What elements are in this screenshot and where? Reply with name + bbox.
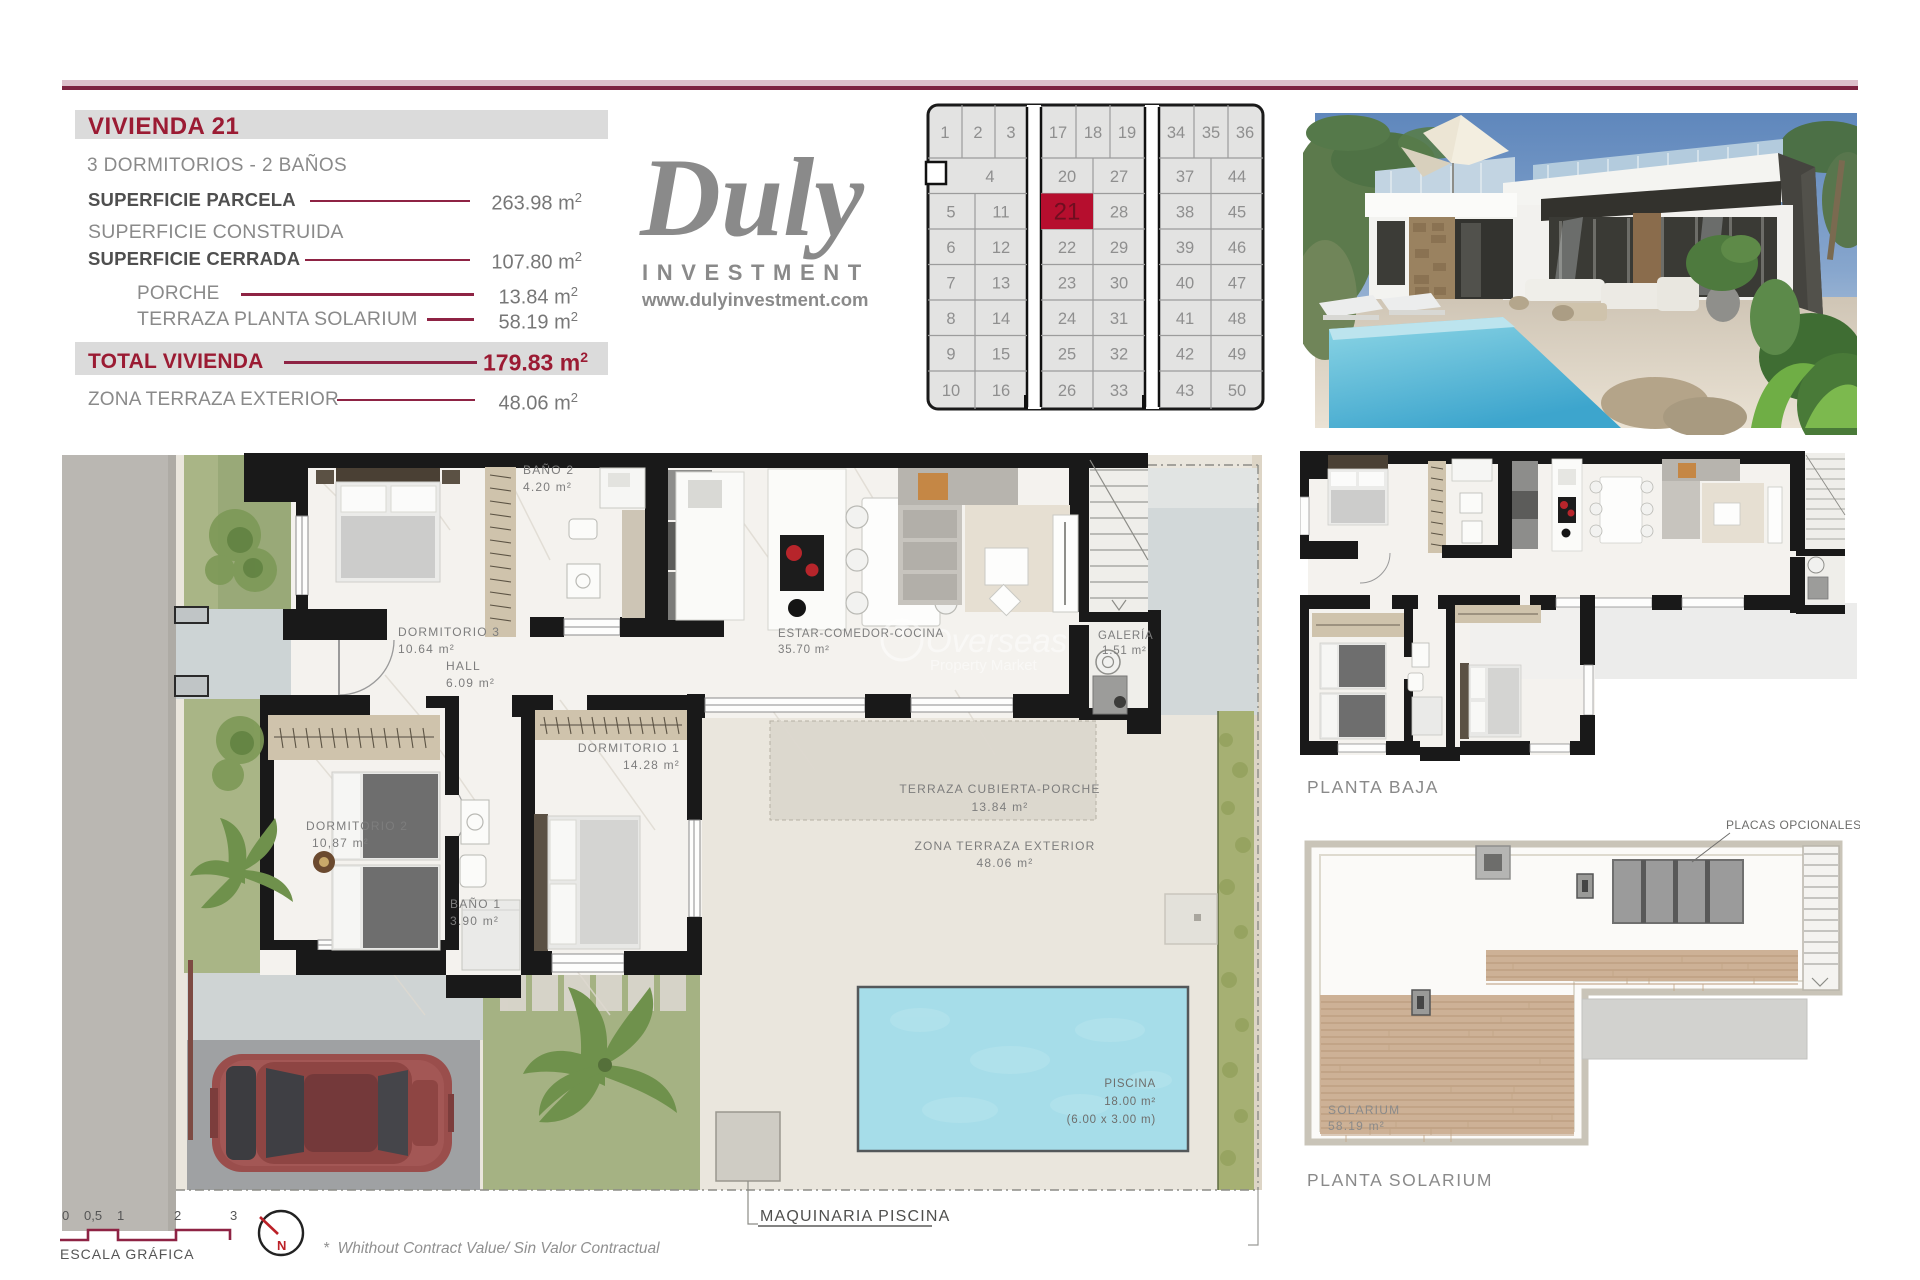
svg-text:25: 25 xyxy=(1058,345,1076,363)
svg-text:www.dulyinvestment.com: www.dulyinvestment.com xyxy=(641,289,869,310)
svg-text:BAÑO 1: BAÑO 1 xyxy=(450,897,501,911)
svg-text:HALL: HALL xyxy=(446,659,481,673)
svg-text:40: 40 xyxy=(1176,274,1194,292)
svg-text:35: 35 xyxy=(1202,124,1220,142)
svg-text:GALERÍA: GALERÍA xyxy=(1098,629,1153,642)
svg-text:34: 34 xyxy=(1167,124,1185,142)
svg-text:18: 18 xyxy=(1084,124,1102,142)
svg-text:14: 14 xyxy=(992,310,1010,328)
svg-text:28: 28 xyxy=(1110,203,1128,221)
svg-text:3: 3 xyxy=(1006,124,1015,142)
svg-text:4: 4 xyxy=(985,168,994,186)
svg-text:1.51 m²: 1.51 m² xyxy=(1102,645,1147,657)
svg-text:36: 36 xyxy=(1236,124,1254,142)
svg-text:58.19 m²: 58.19 m² xyxy=(1328,1119,1385,1133)
svg-text:PLANTA BAJA: PLANTA BAJA xyxy=(1307,777,1439,797)
svg-text:30: 30 xyxy=(1110,274,1128,292)
svg-text:45: 45 xyxy=(1228,203,1246,221)
svg-text:14.28 m²: 14.28 m² xyxy=(623,758,680,772)
svg-text:39: 39 xyxy=(1176,239,1194,257)
svg-text:16: 16 xyxy=(992,382,1010,400)
svg-text:42: 42 xyxy=(1176,345,1194,363)
svg-text:15: 15 xyxy=(992,345,1010,363)
svg-text:Duly: Duly xyxy=(639,136,865,260)
svg-text:31: 31 xyxy=(1110,310,1128,328)
svg-text:DORMITORIO 2: DORMITORIO 2 xyxy=(306,819,408,833)
svg-text:27: 27 xyxy=(1110,168,1128,186)
svg-text:47: 47 xyxy=(1228,274,1246,292)
svg-text:38: 38 xyxy=(1176,203,1194,221)
svg-text:18.00 m²: 18.00 m² xyxy=(1104,1096,1156,1108)
svg-text:26: 26 xyxy=(1058,382,1076,400)
svg-text:Property Market: Property Market xyxy=(930,657,1038,674)
svg-text:44: 44 xyxy=(1228,168,1246,186)
svg-text:23: 23 xyxy=(1058,274,1076,292)
svg-text:29: 29 xyxy=(1110,239,1128,257)
svg-text:33: 33 xyxy=(1110,382,1128,400)
svg-text:10: 10 xyxy=(942,382,960,400)
svg-text:PLANTA SOLARIUM: PLANTA SOLARIUM xyxy=(1307,1170,1493,1190)
svg-text:24: 24 xyxy=(1058,310,1076,328)
svg-text:13: 13 xyxy=(992,274,1010,292)
svg-text:ESTAR-COMEDOR-COCINA: ESTAR-COMEDOR-COCINA xyxy=(778,628,944,640)
svg-text:INVESTMENT: INVESTMENT xyxy=(642,260,870,285)
svg-text:SOLARIUM: SOLARIUM xyxy=(1328,1103,1400,1117)
svg-text:19: 19 xyxy=(1118,124,1136,142)
svg-text:50: 50 xyxy=(1228,382,1246,400)
svg-text:PLACAS OPCIONALES: PLACAS OPCIONALES xyxy=(1726,818,1860,832)
svg-text:20: 20 xyxy=(1058,168,1076,186)
svg-text:35.70 m²: 35.70 m² xyxy=(778,644,830,656)
svg-text:48: 48 xyxy=(1228,310,1246,328)
svg-text:43: 43 xyxy=(1176,382,1194,400)
svg-text:37: 37 xyxy=(1176,168,1194,186)
svg-text:9: 9 xyxy=(946,345,955,363)
svg-text:4.20 m²: 4.20 m² xyxy=(523,480,572,494)
svg-text:12: 12 xyxy=(992,239,1010,257)
svg-text:6: 6 xyxy=(946,239,955,257)
svg-text:5: 5 xyxy=(946,203,955,221)
svg-text:DORMITORIO 1: DORMITORIO 1 xyxy=(578,741,680,755)
svg-text:6.09 m²: 6.09 m² xyxy=(446,676,495,690)
svg-text:13.84 m²: 13.84 m² xyxy=(972,800,1029,814)
svg-text:10.64 m²: 10.64 m² xyxy=(398,642,455,656)
svg-text:3.90 m²: 3.90 m² xyxy=(450,914,499,928)
svg-text:32: 32 xyxy=(1110,345,1128,363)
svg-text:2: 2 xyxy=(973,124,982,142)
svg-text:46: 46 xyxy=(1228,239,1246,257)
svg-text:48.06 m²: 48.06 m² xyxy=(977,856,1034,870)
svg-text:MAQUINARIA PISCINA: MAQUINARIA PISCINA xyxy=(760,1208,951,1225)
svg-text:11: 11 xyxy=(992,203,1009,221)
svg-text:ZONA TERRAZA EXTERIOR: ZONA TERRAZA EXTERIOR xyxy=(914,839,1095,853)
svg-text:7: 7 xyxy=(946,274,955,292)
svg-text:1: 1 xyxy=(940,124,949,142)
svg-text:PISCINA: PISCINA xyxy=(1104,1078,1156,1090)
svg-text:22: 22 xyxy=(1058,239,1076,257)
svg-text:41: 41 xyxy=(1176,310,1194,328)
svg-text:17: 17 xyxy=(1049,124,1067,142)
svg-text:TERRAZA CUBIERTA-PORCHE: TERRAZA CUBIERTA-PORCHE xyxy=(899,782,1100,796)
svg-text:(6.00 x 3.00 m): (6.00 x 3.00 m) xyxy=(1067,1114,1156,1126)
svg-text:DORMITORIO 3: DORMITORIO 3 xyxy=(398,625,500,639)
svg-text:N: N xyxy=(277,1238,286,1253)
svg-text:21: 21 xyxy=(1054,198,1081,225)
svg-text:Overseas: Overseas xyxy=(926,622,1067,659)
svg-text:10,87 m²: 10,87 m² xyxy=(312,836,369,850)
svg-text:8: 8 xyxy=(946,310,955,328)
svg-text:BAÑO 2: BAÑO 2 xyxy=(523,463,574,477)
svg-text:49: 49 xyxy=(1228,345,1246,363)
